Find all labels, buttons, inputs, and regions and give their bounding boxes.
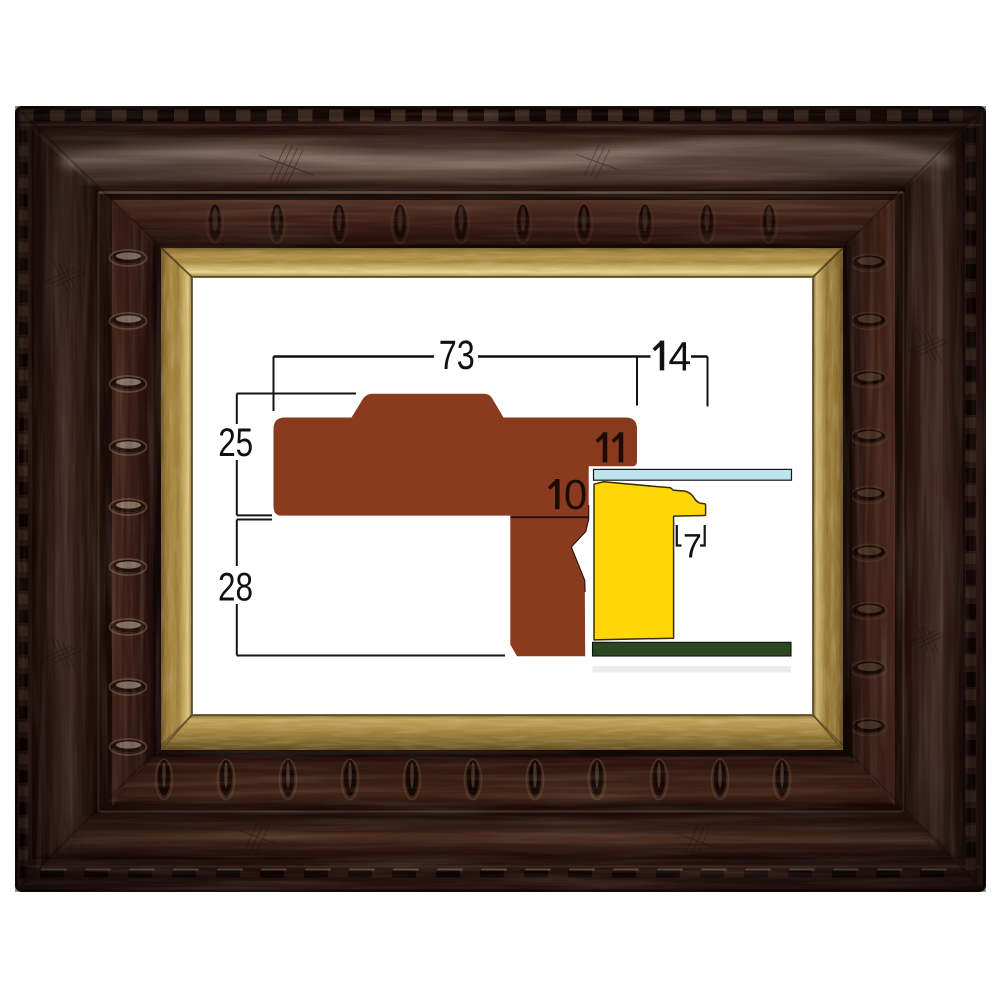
svg-text:28: 28 [218,566,253,610]
svg-text:73: 73 [439,332,475,378]
svg-text:25: 25 [218,421,253,465]
svg-text:7: 7 [683,528,702,566]
svg-text:4: 4 [668,333,691,379]
svg-text:0: 0 [564,471,587,518]
